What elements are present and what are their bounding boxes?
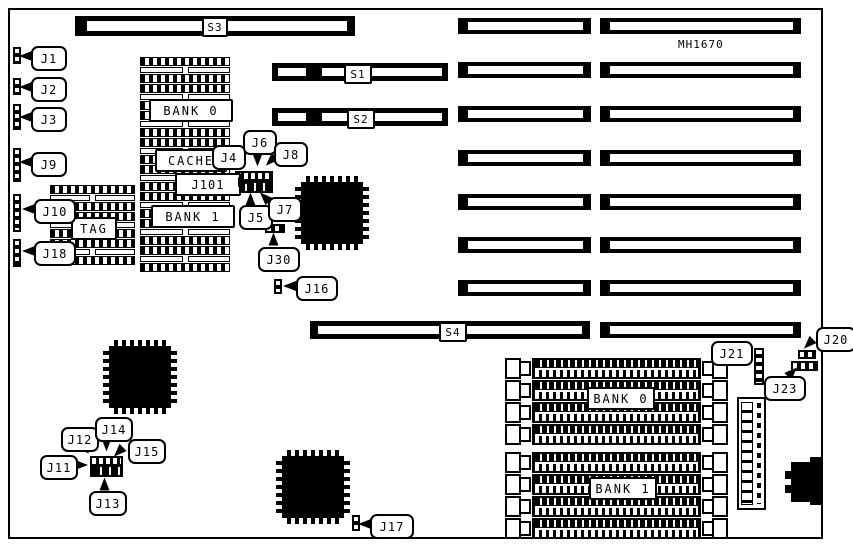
tag-label: TAG [71, 217, 117, 240]
keyboard-connector [791, 462, 811, 502]
callout-j5-arrow [246, 193, 256, 206]
connector-j10 [13, 194, 21, 232]
callout-j16: J16 [296, 276, 338, 301]
simm-socket [505, 452, 728, 473]
callout-j17: J17 [370, 514, 414, 539]
callout-j7: J7 [268, 197, 302, 222]
simm-socket [505, 424, 728, 445]
keyboard-connector-tab [785, 485, 791, 493]
connector-j21 [754, 348, 764, 385]
expansion-slot [600, 194, 801, 210]
simm-socket [505, 518, 728, 539]
callout-j6-arrow [253, 154, 263, 167]
expansion-slot [458, 194, 591, 210]
connector-j18 [13, 239, 21, 267]
slot-s3-label: S3 [202, 17, 228, 37]
power-connector [737, 397, 766, 510]
callout-j3: J3 [31, 107, 67, 132]
simm-socket [505, 358, 728, 379]
callout-j14: J14 [95, 417, 133, 442]
callout-j13-arrow [100, 478, 110, 491]
expansion-slot [600, 18, 801, 34]
model-number: MH1670 [678, 38, 724, 51]
callout-j11: J11 [40, 455, 78, 480]
j101-arrow [238, 177, 251, 187]
slot-s1-label: S1 [344, 64, 372, 84]
callout-j6: J6 [243, 130, 277, 155]
callout-j16-arrow [283, 281, 296, 291]
expansion-slot [458, 280, 591, 296]
expansion-slot [600, 237, 801, 253]
dip-socket [140, 57, 230, 83]
motherboard-diagram: S3 S1 S2 S4 MH1670 BANK 0 CACHE J101 [0, 0, 853, 545]
callout-j1: J1 [31, 46, 67, 71]
simm-bank0-label: BANK 0 [587, 387, 655, 410]
keyboard-connector-flange [810, 457, 821, 505]
callout-j2: J2 [31, 77, 67, 102]
simm-bank1-label: BANK 1 [589, 477, 657, 500]
callout-j12: J12 [61, 427, 99, 452]
callout-j21: J21 [711, 341, 753, 366]
slot-s4-label: S4 [439, 322, 467, 342]
callout-j23: J23 [764, 376, 806, 401]
slot-s2-label: S2 [347, 109, 375, 129]
keyboard-connector-tab [785, 471, 791, 479]
callout-j8: J8 [274, 142, 308, 167]
expansion-slot [458, 150, 591, 166]
callout-j9: J9 [31, 152, 67, 177]
chip-qfp-1 [295, 176, 369, 250]
expansion-slot [458, 18, 591, 34]
connector-j16 [274, 279, 282, 294]
callout-j30-arrow [269, 233, 279, 246]
callout-j20: J20 [816, 327, 853, 352]
expansion-slot [600, 106, 801, 122]
expansion-slot [458, 237, 591, 253]
expansion-slot [458, 62, 591, 78]
expansion-slot [600, 150, 801, 166]
dip-bank1-label: BANK 1 [151, 205, 235, 228]
callout-j10: J10 [34, 199, 76, 224]
expansion-slot [600, 322, 801, 338]
j101-label: J101 [175, 173, 241, 196]
expansion-slot [600, 280, 801, 296]
dip-bank0-label: BANK 0 [149, 99, 233, 122]
callout-j15: J15 [128, 439, 166, 464]
callout-j30: J30 [258, 247, 300, 272]
expansion-slot [458, 106, 591, 122]
expansion-slot [600, 62, 801, 78]
chip-qfp-3 [276, 450, 350, 524]
callout-j4: J4 [212, 145, 246, 170]
callout-j18: J18 [34, 241, 76, 266]
chip-qfp-2 [103, 340, 177, 414]
dip-socket [140, 246, 230, 272]
callout-j13: J13 [89, 491, 127, 516]
